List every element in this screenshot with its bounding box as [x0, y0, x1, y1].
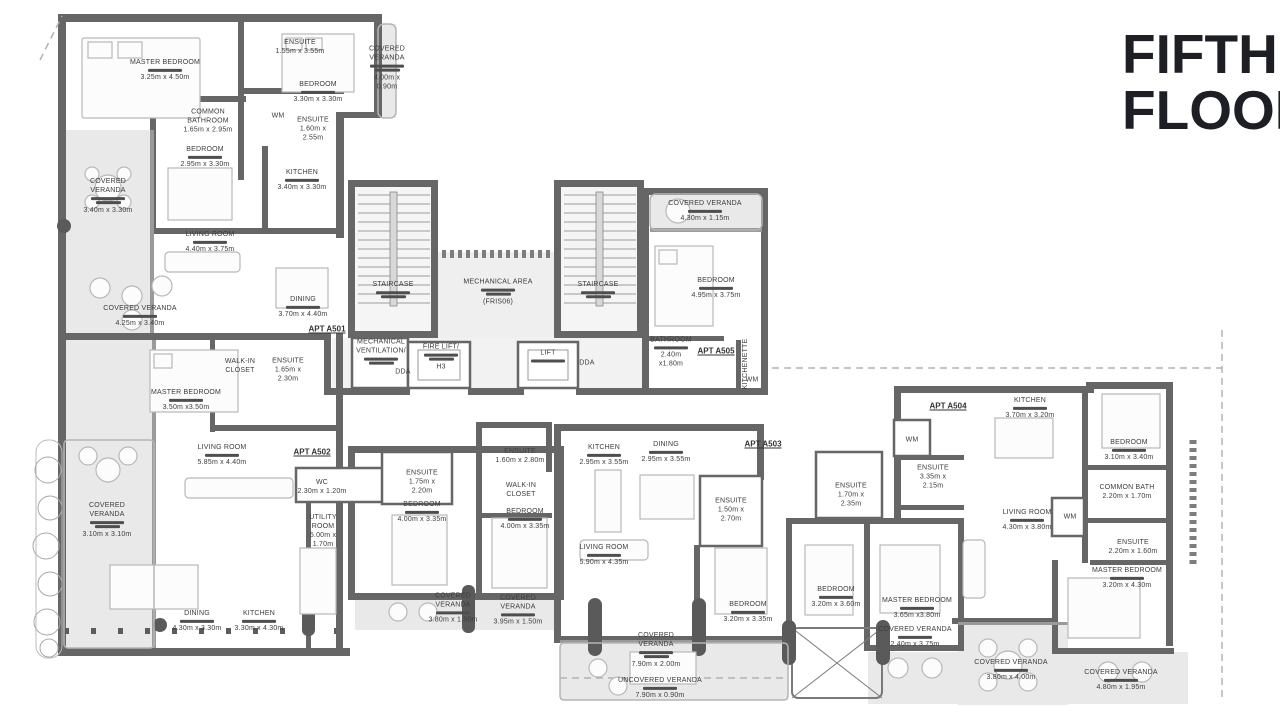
room-name: COVERED VERANDA: [487, 593, 549, 611]
room-dimensions: 5.00m x 1.70m: [303, 531, 343, 549]
room-dimensions: 5.85m x 4.40m: [185, 458, 259, 467]
room-label: UTILITY ROOM5.00m x 1.70m: [303, 513, 343, 549]
room-name: COVERED VERANDA: [85, 304, 195, 313]
room-dimensions: 7.90m x 2.00m: [630, 660, 682, 669]
room-label: WALK-IN CLOSET: [501, 481, 541, 499]
room-name: MASTER BEDROOM: [149, 388, 223, 397]
floorplan-page: { "title": {"line1": "FIFTH", "line2": "…: [0, 0, 1280, 706]
room-label: COVERED VERANDA4.30m x 1.15m: [650, 199, 760, 223]
room-name: COVERED VERANDA: [956, 658, 1066, 667]
room-label: MASTER BEDROOM3.20m x 4.30m: [1090, 566, 1164, 590]
arabic-text-bar: [994, 669, 1028, 672]
arabic-text-bar: [364, 357, 398, 360]
room-label: ENSUITE1.65m x 2.30m: [268, 356, 308, 383]
arabic-text-bar: [531, 359, 565, 362]
room-name: MECHANICAL VENTILATION/: [355, 338, 407, 356]
room-label: BEDROOM3.20m x 3.35m: [711, 600, 785, 624]
room-label: BEDROOM4.00m x 3.35m: [495, 507, 555, 531]
arabic-text-bar: [486, 293, 511, 296]
room-label: COVERED VERANDA3.10m x 3.10m: [81, 501, 133, 539]
room-label: UNCOVERED VERANDA7.90m x 0.90m: [600, 676, 720, 700]
room-name: LIFT: [526, 348, 570, 357]
room-name: ENSUITE: [263, 38, 337, 47]
arabic-text-bar: [501, 613, 535, 616]
room-dimensions: 3.10m x 3.10m: [81, 530, 133, 539]
room-label: ENSUITE2.20m x 1.60m: [1108, 538, 1158, 556]
arabic-text-bar: [731, 611, 765, 614]
room-label: COVERED VERANDA4.80m x 1.95m: [1066, 668, 1176, 692]
room-label: ENSUITE3.35m x 2.15m: [913, 463, 953, 490]
room-name: LIVING ROOM: [567, 543, 641, 552]
room-dimensions: 3.65m x3.80m: [880, 611, 954, 620]
arabic-text-bar: [123, 315, 157, 318]
room-dimensions: 3.80m x 1.50m: [422, 616, 484, 625]
room-label: COVERED VERANDA7.90m x 2.00m: [630, 631, 682, 669]
room-name: DINING: [629, 440, 703, 449]
room-label: LIFT: [526, 348, 570, 363]
arabic-text-bar: [699, 287, 733, 290]
room-name: BEDROOM: [385, 500, 459, 509]
room-label: BEDROOM2.95m x 3.30m: [168, 145, 242, 169]
room-dimensions: 1.65m x 2.95m: [180, 126, 236, 135]
room-label: FIRE LIFT/H3: [416, 343, 466, 372]
arabic-text-bar: [242, 620, 276, 623]
apartment-label: APT A502: [293, 448, 330, 457]
room-label: KITCHEN3.70m x 3.20m: [993, 396, 1067, 420]
arabic-text-bar: [688, 210, 722, 213]
room-label: MASTER BEDROOM3.50m x3.50m: [149, 388, 223, 412]
room-label: DDA: [575, 358, 599, 367]
room-label: BEDROOM4.00m x 3.35m: [385, 500, 459, 524]
room-label: KITCHEN3.30m x 4.30m: [222, 609, 296, 633]
arabic-text-bar: [587, 554, 621, 557]
room-name: LIVING ROOM: [990, 508, 1064, 517]
room-label: WM: [742, 375, 762, 384]
room-dimensions: 3.70m x 3.20m: [993, 411, 1067, 420]
room-dimensions: 2.95m x 3.30m: [168, 160, 242, 169]
room-name: COVERED VERANDA: [422, 591, 484, 609]
room-dimensions: H3: [416, 362, 466, 371]
room-dimensions: 1.70m x 2.35m: [831, 490, 871, 508]
arabic-text-bar: [286, 306, 320, 309]
room-dimensions: 5.90m x 4.35m: [567, 558, 641, 567]
room-name: BEDROOM: [799, 585, 873, 594]
room-name: COMMON BATHROOM: [180, 107, 236, 125]
room-label: WM: [1060, 512, 1080, 521]
room-dimensions: 2.30m x 1.20m: [294, 487, 350, 496]
room-name: ENSUITE: [711, 496, 751, 505]
arabic-text-bar: [639, 651, 673, 654]
room-name: COVERED VERANDA: [650, 199, 760, 208]
room-dimensions: 1.60m x 2.55m: [293, 124, 333, 142]
room-dimensions: 2.40m x 3.75m: [860, 640, 970, 649]
room-dimensions: 4.80m x 1.95m: [1066, 683, 1176, 692]
arabic-text-bar: [1010, 519, 1044, 522]
title-line-2: FLOOR: [1122, 82, 1280, 138]
room-label: BATHROOM2.40m x1.80m: [649, 335, 693, 368]
arabic-text-bar: [180, 620, 214, 623]
room-name: COVERED VERANDA: [630, 631, 682, 649]
room-label: DDA: [391, 367, 415, 376]
room-dimensions: 4.00m x 0.90m: [366, 73, 408, 91]
room-label: LIVING ROOM5.90m x 4.35m: [567, 543, 641, 567]
planting: [33, 440, 62, 658]
apartment-label: APT A505: [697, 347, 734, 356]
arabic-text-bar: [1104, 679, 1138, 682]
room-name: UNCOVERED VERANDA: [600, 676, 720, 685]
room-name: WALK-IN CLOSET: [501, 481, 541, 499]
room-label: COMMON BATHROOM1.65m x 2.95m: [180, 107, 236, 134]
room-name: ENSUITE: [913, 463, 953, 472]
room-label: COVERED VERANDA2.40m x 3.75m: [860, 625, 970, 649]
room-label: COVERED VERANDA4.25m x 3.40m: [85, 304, 195, 328]
room-dimensions: 3.70m x 4.40m: [266, 310, 340, 319]
room-dimensions: 1.50m x 2.70m: [711, 505, 751, 523]
arabic-text-bar: [900, 607, 934, 610]
room-label: MECHANICAL VENTILATION/: [355, 338, 407, 367]
room-name: WALK-IN CLOSET: [220, 357, 260, 375]
room-dimensions: 3.35m x 2.15m: [913, 472, 953, 490]
arabic-text-bar: [898, 636, 932, 639]
arabic-text-bar: [205, 454, 239, 457]
room-label: ENSUITE1.60m x 2.80m: [495, 447, 545, 465]
room-name: ENSUITE: [495, 447, 545, 456]
room-name: WM: [742, 375, 762, 384]
arabic-text-bar: [581, 291, 615, 294]
room-label: WM: [902, 435, 922, 444]
room-dimensions: 1.65m x 2.30m: [268, 365, 308, 383]
page-title: FIFTH FLOOR: [1122, 26, 1280, 138]
arabic-text-bar: [819, 596, 853, 599]
room-name: BEDROOM: [679, 276, 753, 285]
room-dimensions: 4.00m x 3.35m: [385, 515, 459, 524]
room-dimensions: 4.00m x 3.35m: [495, 522, 555, 531]
room-name: COVERED VERANDA: [366, 45, 408, 63]
room-label: WALK-IN CLOSET: [220, 357, 260, 375]
room-name: UTILITY ROOM: [303, 513, 343, 531]
room-name: ENSUITE: [293, 115, 333, 124]
room-name: WM: [1060, 512, 1080, 521]
room-dimensions: 4.30m x 1.15m: [650, 214, 760, 223]
room-label: COMMON BATH2.20m x 1.70m: [1092, 483, 1162, 501]
arabic-text-bar: [654, 346, 688, 349]
room-label: WC2.30m x 1.20m: [294, 478, 350, 496]
arabic-text-bar: [188, 156, 222, 159]
room-label: ENSUITE1.50m x 2.70m: [711, 496, 751, 523]
room-label: ENSUITE1.55m x 3.55m: [263, 38, 337, 56]
room-dimensions: 3.40m x 3.30m: [82, 206, 134, 215]
room-dimensions: 1.75m x 2.20m: [400, 477, 444, 495]
room-label: COVERED VERANDA3.95m x 1.50m: [487, 593, 549, 626]
room-name: DINING: [266, 295, 340, 304]
room-name: COVERED VERANDA: [81, 501, 133, 519]
arabic-text-bar: [481, 288, 515, 291]
room-name: MASTER BEDROOM: [1090, 566, 1164, 575]
room-name: ENSUITE: [400, 468, 444, 477]
room-label: COVERED VERANDA3.80m x 1.50m: [422, 591, 484, 624]
arabic-text-bar: [436, 611, 470, 614]
room-label: KITCHEN3.40m x 3.30m: [265, 168, 339, 192]
room-name: MASTER BEDROOM: [128, 58, 202, 67]
arabic-text-bar: [1112, 449, 1146, 452]
room-label: STAIRCASE: [561, 280, 635, 300]
room-dimensions: 3.95m x 1.50m: [487, 618, 549, 627]
room-name: MASTER BEDROOM: [880, 596, 954, 605]
room-dimensions: 2.20m x 1.70m: [1092, 492, 1162, 501]
arabic-text-bar: [1013, 407, 1047, 410]
room-dimensions: (FRIS06): [453, 297, 543, 306]
room-name: BEDROOM: [711, 600, 785, 609]
arabic-text-bar: [369, 362, 394, 365]
room-label: LIVING ROOM4.40m x 3.75m: [173, 230, 247, 254]
room-dimensions: 4.25m x 3.40m: [85, 319, 195, 328]
room-label: DINING2.95m x 3.55m: [629, 440, 703, 464]
room-label: LIVING ROOM5.85m x 4.40m: [185, 443, 259, 467]
room-dimensions: 4.95m x 3.75m: [679, 291, 753, 300]
arabic-text-bar: [587, 454, 621, 457]
arabic-text-bar: [429, 358, 454, 361]
room-dimensions: 4.40m x 3.75m: [173, 245, 247, 254]
room-label: STAIRCASE: [356, 280, 430, 300]
room-dimensions: 3.40m x 3.30m: [265, 183, 339, 192]
room-dimensions: 3.20m x 3.35m: [711, 615, 785, 624]
room-name: LIVING ROOM: [173, 230, 247, 239]
room-label: LIVING ROOM4.30m x 3.80m: [990, 508, 1064, 532]
room-dimensions: 3.30m x 4.30m: [222, 624, 296, 633]
room-name: STAIRCASE: [561, 280, 635, 289]
arabic-text-bar: [95, 525, 120, 528]
room-dimensions: 1.60m x 2.80m: [495, 456, 545, 465]
room-name: BEDROOM: [281, 80, 355, 89]
arabic-text-bar: [1110, 577, 1144, 580]
room-label: BEDROOM3.10m x 3.40m: [1092, 438, 1166, 462]
arabic-text-bar: [643, 687, 677, 690]
room-name: LIVING ROOM: [185, 443, 259, 452]
room-name: COVERED VERANDA: [860, 625, 970, 634]
title-line-1: FIFTH: [1122, 26, 1280, 82]
arabic-text-bar: [508, 518, 542, 521]
room-label: COVERED VERANDA3.40m x 3.30m: [82, 177, 134, 215]
arabic-text-bar: [424, 353, 458, 356]
arabic-text-bar: [644, 655, 669, 658]
arabic-text-bar: [169, 399, 203, 402]
room-label: BEDROOM3.30m x 3.30m: [281, 80, 355, 104]
apartment-label: APT A501: [308, 325, 345, 334]
room-dimensions: 3.20m x 3.60m: [799, 600, 873, 609]
room-label: DINING3.70m x 4.40m: [266, 295, 340, 319]
room-label: ENSUITE1.75m x 2.20m: [400, 468, 444, 495]
room-dimensions: 2.95m x 3.55m: [629, 455, 703, 464]
room-label: COVERED VERANDA3.80m x 4.00m: [956, 658, 1066, 682]
room-dimensions: 2.40m x1.80m: [649, 350, 693, 368]
arabic-text-bar: [381, 295, 406, 298]
room-dimensions: 7.90m x 0.90m: [600, 691, 720, 700]
floorplan-drawing: [0, 0, 1280, 706]
arabic-text-bar: [405, 511, 439, 514]
room-name: DDA: [575, 358, 599, 367]
room-name: BEDROOM: [1092, 438, 1166, 447]
room-label: MASTER BEDROOM3.25m x 4.50m: [128, 58, 202, 82]
room-name: BEDROOM: [495, 507, 555, 516]
room-label: MECHANICAL AREA(FRIS06): [453, 278, 543, 307]
arabic-text-bar: [193, 241, 227, 244]
room-name: BATHROOM: [649, 335, 693, 344]
room-name: COMMON BATH: [1092, 483, 1162, 492]
room-label: ENSUITE1.70m x 2.35m: [831, 481, 871, 508]
room-dimensions: 1.55m x 3.55m: [263, 47, 337, 56]
room-name: KITCHEN: [265, 168, 339, 177]
arabic-text-bar: [376, 291, 410, 294]
room-name: KITCHEN: [222, 609, 296, 618]
room-dimensions: 3.50m x3.50m: [149, 403, 223, 412]
room-label: MASTER BEDROOM3.65m x3.80m: [880, 596, 954, 620]
apartment-label: APT A503: [744, 440, 781, 449]
room-name: WM: [902, 435, 922, 444]
arabic-text-bar: [148, 69, 182, 72]
arabic-text-bar: [375, 69, 400, 72]
room-name: COVERED VERANDA: [82, 177, 134, 195]
arabic-text-bar: [586, 295, 611, 298]
room-name: BEDROOM: [168, 145, 242, 154]
arabic-text-bar: [649, 451, 683, 454]
arabic-text-bar: [285, 179, 319, 182]
room-label: WM: [268, 111, 288, 120]
room-label: ENSUITE1.60m x 2.55m: [293, 115, 333, 142]
arabic-text-bar: [370, 64, 404, 67]
room-dimensions: 3.20m x 4.30m: [1090, 581, 1164, 590]
room-dimensions: 2.20m x 1.60m: [1108, 547, 1158, 556]
room-name: STAIRCASE: [356, 280, 430, 289]
room-name: KITCHEN: [993, 396, 1067, 405]
room-name: COVERED VERANDA: [1066, 668, 1176, 677]
room-name: ENSUITE: [268, 356, 308, 365]
room-name: MECHANICAL AREA: [453, 278, 543, 287]
room-dimensions: 3.80m x 4.00m: [956, 673, 1066, 682]
room-name: ENSUITE: [1108, 538, 1158, 547]
room-name: ENSUITE: [831, 481, 871, 490]
arabic-text-bar: [301, 91, 335, 94]
room-dimensions: 3.25m x 4.50m: [128, 73, 202, 82]
arabic-text-bar: [96, 201, 121, 204]
room-dimensions: 4.30m x 3.80m: [990, 523, 1064, 532]
room-dimensions: 3.10m x 3.40m: [1092, 453, 1166, 462]
arabic-text-bar: [91, 197, 125, 200]
arabic-text-bar: [90, 521, 124, 524]
room-name: WM: [268, 111, 288, 120]
room-name: DDA: [391, 367, 415, 376]
room-name: FIRE LIFT/: [416, 343, 466, 352]
room-label: COVERED VERANDA4.00m x 0.90m: [366, 45, 408, 92]
room-name: WC: [294, 478, 350, 487]
room-dimensions: 3.30m x 3.30m: [281, 95, 355, 104]
apartment-label: APT A504: [929, 402, 966, 411]
room-label: BEDROOM3.20m x 3.60m: [799, 585, 873, 609]
room-label: BEDROOM4.95m x 3.75m: [679, 276, 753, 300]
